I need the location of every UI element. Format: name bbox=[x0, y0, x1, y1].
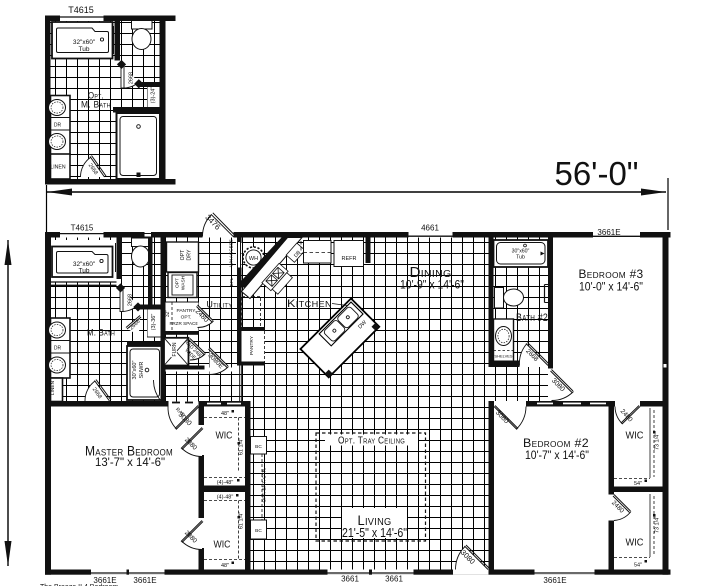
svg-text:(3)-36": (3)-36" bbox=[151, 314, 157, 331]
svg-text:3661: 3661 bbox=[385, 575, 403, 584]
svg-text:48": 48" bbox=[221, 563, 229, 569]
svg-text:WH: WH bbox=[249, 256, 258, 262]
svg-text:13'-7" x 14'-6": 13'-7" x 14'-6" bbox=[95, 455, 165, 469]
svg-text:WIC: WIC bbox=[216, 430, 233, 442]
svg-text:32": 32" bbox=[165, 310, 171, 318]
svg-text:54": 54" bbox=[634, 481, 642, 487]
svg-text:(4)-48": (4)-48" bbox=[217, 495, 234, 501]
svg-text:BC: BC bbox=[255, 444, 262, 450]
svg-text:T4615: T4615 bbox=[71, 224, 94, 233]
svg-text:2668: 2668 bbox=[129, 72, 135, 84]
svg-text:Kitchen: Kitchen bbox=[287, 298, 332, 310]
svg-text:OPT: OPT bbox=[175, 278, 181, 288]
svg-text:OPT. ENT. CTR.: OPT. ENT. CTR. bbox=[262, 468, 268, 503]
svg-text:BC: BC bbox=[255, 528, 262, 534]
svg-text:DR: DR bbox=[54, 123, 62, 129]
svg-text:3661E: 3661E bbox=[93, 576, 116, 585]
svg-text:Opt. Tray Ceiling: Opt. Tray Ceiling bbox=[338, 436, 405, 447]
svg-text:73 1/4": 73 1/4" bbox=[655, 516, 661, 533]
svg-text:61 1/4": 61 1/4" bbox=[239, 512, 245, 529]
svg-text:10'-7" x 14'-6": 10'-7" x 14'-6" bbox=[525, 448, 589, 462]
svg-text:PANTRY: PANTRY bbox=[176, 308, 196, 314]
svg-text:T4615: T4615 bbox=[68, 5, 94, 15]
svg-text:Bath #2: Bath #2 bbox=[516, 312, 548, 324]
svg-text:PANTRY: PANTRY bbox=[249, 335, 255, 355]
svg-text:REFR: REFR bbox=[342, 256, 357, 262]
svg-text:30"x60": 30"x60" bbox=[132, 361, 138, 380]
svg-text:48": 48" bbox=[221, 411, 229, 417]
svg-text:LINEN: LINEN bbox=[50, 380, 56, 395]
svg-text:WIC: WIC bbox=[626, 537, 644, 549]
svg-text:Utility: Utility bbox=[207, 300, 233, 310]
svg-text:Tub: Tub bbox=[79, 268, 90, 275]
svg-text:WIC: WIC bbox=[214, 539, 231, 551]
svg-text:10'-9" x 14'-6": 10'-9" x 14'-6" bbox=[400, 278, 464, 292]
svg-text:Tub: Tub bbox=[79, 46, 90, 53]
svg-text:SHWR: SHWR bbox=[139, 362, 145, 379]
svg-text:SHELVES: SHELVES bbox=[494, 354, 512, 359]
svg-text:3661E: 3661E bbox=[543, 576, 566, 585]
svg-text:M. Bath: M. Bath bbox=[87, 328, 115, 338]
svg-text:32"x60": 32"x60" bbox=[73, 39, 96, 46]
svg-text:LINEN: LINEN bbox=[50, 165, 66, 171]
svg-text:FURN: FURN bbox=[172, 342, 178, 356]
svg-text:(4)-48": (4)-48" bbox=[217, 480, 234, 486]
svg-text:WH ACCESS: WH ACCESS bbox=[229, 239, 234, 267]
svg-text:3661E: 3661E bbox=[133, 576, 156, 585]
svg-text:56'-0": 56'-0" bbox=[555, 155, 639, 192]
svg-text:73 1/4": 73 1/4" bbox=[655, 433, 661, 450]
svg-text:3661: 3661 bbox=[341, 575, 359, 584]
svg-text:M. Bath: M. Bath bbox=[81, 100, 111, 110]
svg-text:OPT: OPT bbox=[180, 249, 186, 260]
svg-text:DRY: DRY bbox=[187, 249, 193, 260]
svg-text:4661: 4661 bbox=[421, 224, 439, 233]
svg-text:EPL: EPL bbox=[229, 277, 234, 286]
svg-text:DR: DR bbox=[54, 346, 62, 352]
svg-text:61 1/4": 61 1/4" bbox=[239, 438, 245, 455]
svg-text:WIC: WIC bbox=[626, 430, 644, 442]
svg-text:21'-5" x 14'-6": 21'-5" x 14'-6" bbox=[342, 526, 407, 540]
svg-text:2668: 2668 bbox=[128, 294, 134, 306]
svg-text:FRZR SPACE: FRZR SPACE bbox=[170, 321, 199, 327]
svg-text:(3)-24": (3)-24" bbox=[151, 87, 157, 104]
svg-text:3661E: 3661E bbox=[597, 228, 620, 237]
svg-text:OPT.: OPT. bbox=[181, 315, 192, 321]
svg-text:10'-0" x 14'-6": 10'-0" x 14'-6" bbox=[579, 280, 643, 294]
svg-text:Tub: Tub bbox=[516, 255, 525, 261]
svg-text:WASH: WASH bbox=[181, 275, 187, 290]
svg-text:54": 54" bbox=[634, 563, 642, 569]
